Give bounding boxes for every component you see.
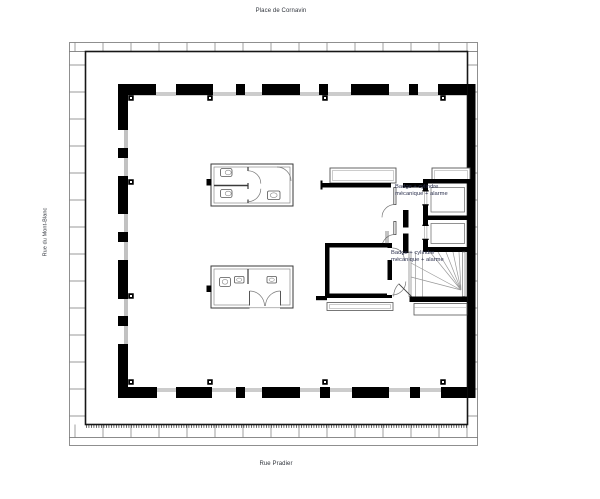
floor-plan-page: Place de Cornavin Rue du Mont-Blanc Rue …	[0, 0, 600, 499]
annotation-line: Badge + cylindre	[395, 184, 455, 191]
wc-fixture	[220, 278, 231, 287]
core-room	[316, 231, 406, 311]
toilet-block-lower	[207, 266, 294, 309]
building-envelope	[86, 52, 468, 425]
facade-wall	[118, 84, 476, 398]
floor-plan-drawing	[0, 0, 600, 499]
street-label-rue-pradier: Rue Pradier	[221, 461, 331, 468]
facade-glazing	[118, 84, 467, 398]
annotation-line: mécanique + alarme	[395, 191, 455, 198]
sink-fixture	[268, 191, 281, 200]
security-annotation: Badge + cylindre mécanique + alarme	[391, 250, 451, 264]
annotation-line: Badge + cylindre	[391, 250, 451, 257]
toilet-block-upper	[207, 164, 294, 206]
site-boundary	[70, 43, 478, 446]
structural-columns	[128, 95, 446, 385]
annotation-line: mécanique + alarme	[391, 257, 451, 264]
street-label-place-de-cornavin: Place de Cornavin	[226, 8, 336, 15]
security-annotation: Badge + cylindre mécanique + alarme	[395, 184, 455, 198]
street-label-rue-du-mont-blanc: Rue du Mont-Blanc	[43, 208, 50, 257]
